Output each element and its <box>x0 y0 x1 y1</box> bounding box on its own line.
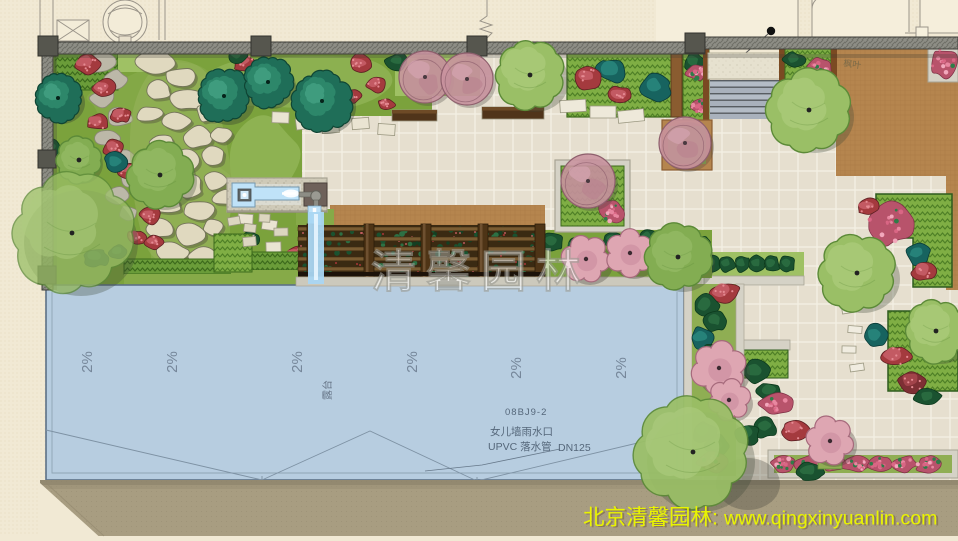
svg-text:2%: 2% <box>289 351 306 373</box>
svg-text:2%: 2% <box>613 357 630 379</box>
svg-text:女儿墙雨水口: 女儿墙雨水口 <box>490 425 553 438</box>
svg-text:2%: 2% <box>404 351 421 373</box>
svg-text:清: 清 <box>371 247 416 297</box>
svg-text:08BJ9-2: 08BJ9-2 <box>505 407 547 418</box>
svg-text:2%: 2% <box>79 351 96 373</box>
svg-text:北京清馨园林: www.qingxinyuanlin.com: 北京清馨园林: www.qingxinyuanlin.com <box>583 506 937 530</box>
svg-text:UPVC 落水管: UPVC 落水管 <box>488 440 552 453</box>
svg-text:林: 林 <box>536 247 581 297</box>
svg-text:DN125: DN125 <box>558 442 591 454</box>
svg-text:露台: 露台 <box>321 380 334 400</box>
svg-text:2%: 2% <box>508 357 525 379</box>
svg-text:馨: 馨 <box>426 247 472 297</box>
svg-text:园: 园 <box>481 247 526 297</box>
svg-text:2%: 2% <box>164 351 181 373</box>
